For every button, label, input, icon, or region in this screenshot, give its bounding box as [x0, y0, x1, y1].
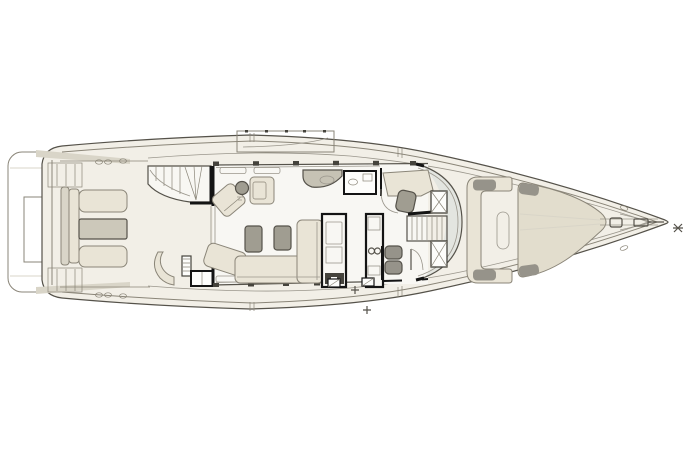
wet-bar	[344, 171, 376, 194]
deck-plan-svg	[0, 0, 699, 466]
companion-seat-2	[385, 261, 402, 274]
helm-seat	[395, 189, 417, 213]
salon-side-table	[236, 182, 249, 195]
ottoman-1	[245, 226, 262, 252]
sofa-return	[297, 220, 323, 283]
companion-seat-1	[385, 246, 402, 259]
lounge-pad-port	[473, 180, 496, 191]
yacht-deck-plan	[0, 0, 699, 466]
cockpit-table	[79, 219, 127, 239]
cockpit-dining	[79, 190, 127, 267]
bow-tip-marker	[673, 224, 683, 232]
cockpit-seat-starboard	[79, 246, 127, 267]
cockpit-seat-port	[79, 190, 127, 212]
transom-bench	[61, 187, 79, 265]
salon-armchair-upright	[250, 177, 274, 204]
helm-base	[408, 212, 433, 214]
aft-cabinet	[191, 271, 214, 286]
ottoman-2	[274, 226, 291, 250]
lounge-pad-starboard	[473, 270, 496, 281]
